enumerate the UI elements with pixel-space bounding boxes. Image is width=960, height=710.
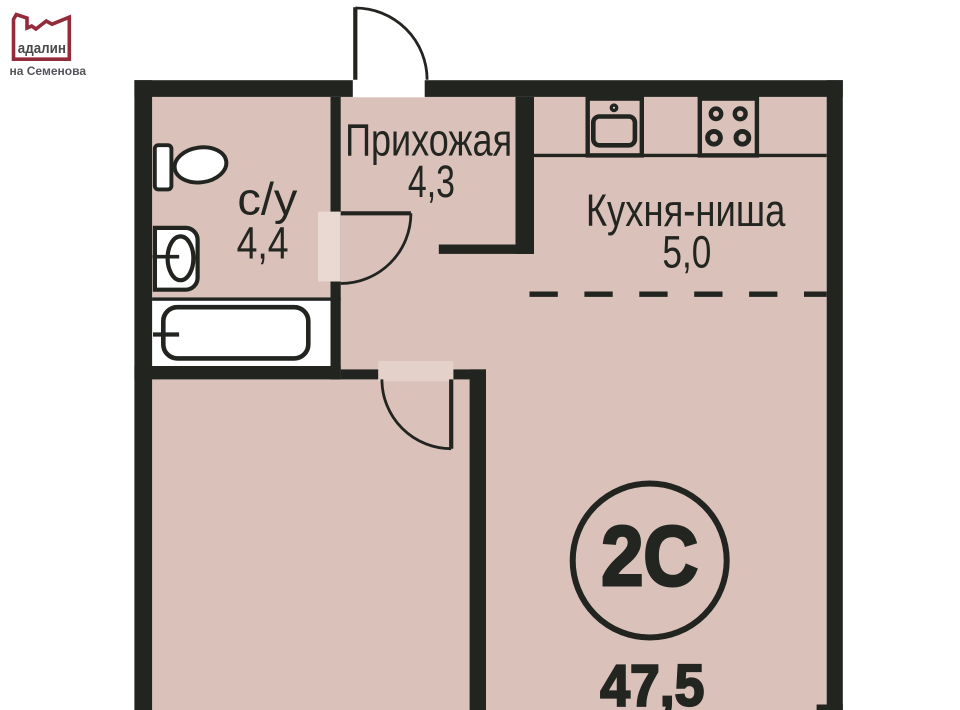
svg-text:адалин: адалин [18,40,66,57]
svg-text:5,0: 5,0 [662,226,711,277]
svg-text:2С: 2С [601,509,698,603]
svg-text:47,5: 47,5 [600,654,704,710]
svg-text:на Семенова: на Семенова [10,64,87,78]
svg-text:4,4: 4,4 [237,218,289,269]
svg-text:4,3: 4,3 [408,156,455,207]
